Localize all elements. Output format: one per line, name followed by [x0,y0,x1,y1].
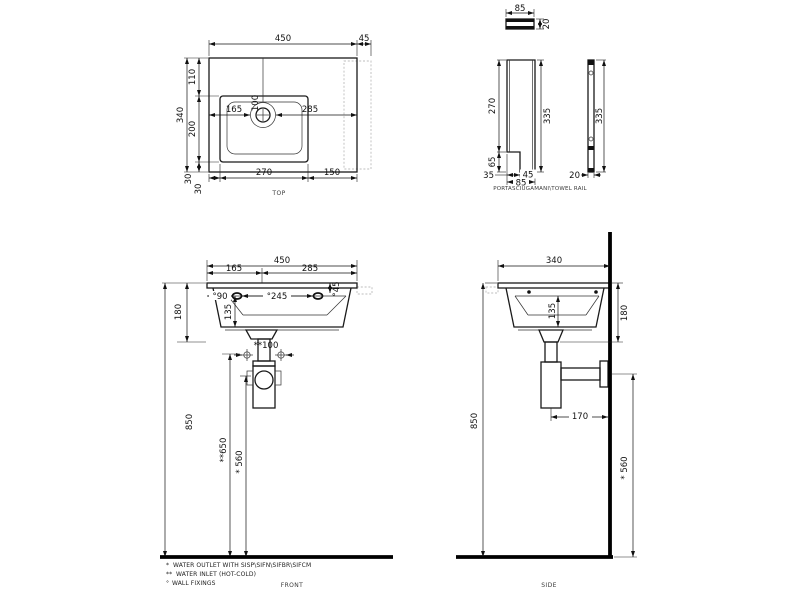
dim-top-150: 150 [324,168,340,178]
side-view-label: SIDE [541,582,557,589]
note-marker-water-outlet: * [166,562,169,569]
dim-top-100: 100 [251,95,261,111]
rail-screw-hole-top [589,71,593,75]
siphon-trap-side [541,362,561,408]
drain-flange-front [246,330,277,339]
note-water-outlet: WATER OUTLET WITH SISP\SIFN\SIFBR\SIFCM [173,562,311,569]
dim-front-850: 850 [185,414,195,430]
dim-front-560: * 560 [235,450,245,473]
dim-front-180: 180 [174,304,184,320]
dim-top-30-vertical: 30 [184,174,194,185]
dim-top-285: 285 [302,105,318,115]
dim-front-165: 165 [226,264,242,274]
drawing-svg: 450 45 110 200 340 30 30 270 150 165 285… [0,0,800,600]
dim-top-450: 450 [275,34,291,44]
dim-front-450: 450 [274,256,290,266]
wall-pipe-flange [600,361,608,387]
dim-front-245: °245 [267,292,287,302]
front-view-label: FRONT [281,582,304,589]
dim-front-135: 135 [224,304,234,320]
fixing-dot-front [527,290,531,294]
dimension-labels: 450 45 110 200 340 30 30 270 150 165 285… [174,4,630,589]
dim-rail-front-335: 335 [543,108,553,124]
rail-side-profile [588,60,594,172]
side-view [456,232,637,557]
dim-front-285: 285 [302,264,318,274]
front-view [160,260,393,557]
siphon-outlet-circle [255,371,273,389]
towel-rail-label: PORTASCIUGAMANI\TOWEL RAIL [493,186,587,192]
dim-rail-plan-85: 85 [515,4,526,14]
note-marker-water-inlet: ** [166,571,172,578]
rail-screw-hole-bottom [589,137,593,141]
dim-front-100: **100 [254,341,279,351]
dim-side-135: 135 [548,303,558,319]
drain-flange-side [539,330,563,342]
dim-top-110: 110 [188,69,198,85]
dim-side-180: 180 [620,305,630,321]
dim-top-30-horizontal: 30 [194,184,204,195]
dim-rail-270: 270 [488,98,498,114]
dim-rail-35: 35 [483,171,494,181]
fixing-dot-back [594,290,598,294]
dim-rail-side-20: 20 [569,171,580,181]
dim-rail-side-335: 335 [595,108,605,124]
top-view-label: TOP [271,190,285,197]
top-view [184,40,371,182]
dim-side-340: 340 [546,256,562,266]
rail-front-profile [507,60,535,172]
note-wall-fixings: WALL FIXINGS [172,580,216,587]
siphon-trap-front [253,366,275,408]
note-marker-wall-fixings: ° [166,580,169,587]
dim-top-165: 165 [226,105,242,115]
dim-side-170: 170 [572,412,588,422]
dim-rail-65: 65 [488,157,498,168]
waste-pipe-to-wall [561,368,600,380]
dim-front-90: °90 [212,292,227,302]
drain-pipe-side [545,342,557,362]
towel-rail-views [495,9,606,185]
dim-top-270: 270 [256,168,272,178]
dim-top-340: 340 [176,107,186,123]
dim-top-200: 200 [188,121,198,137]
dim-front-650: **650 [219,438,229,463]
towel-rail-ghost-front [357,287,372,294]
counter-slab-side [498,283,610,288]
towel-rail-ghost-side [486,287,498,293]
dim-side-850: 850 [470,413,480,429]
technical-drawing-canvas: 450 45 110 200 340 30 30 270 150 165 285… [0,0,800,600]
dim-rail-plan-20: 20 [542,19,552,30]
dim-front-45: °45 [332,281,342,296]
dim-side-560: * 560 [620,456,630,479]
note-water-inlet: WATER INLET (HOT-COLD) [176,571,256,578]
dim-top-45: 45 [359,34,370,44]
